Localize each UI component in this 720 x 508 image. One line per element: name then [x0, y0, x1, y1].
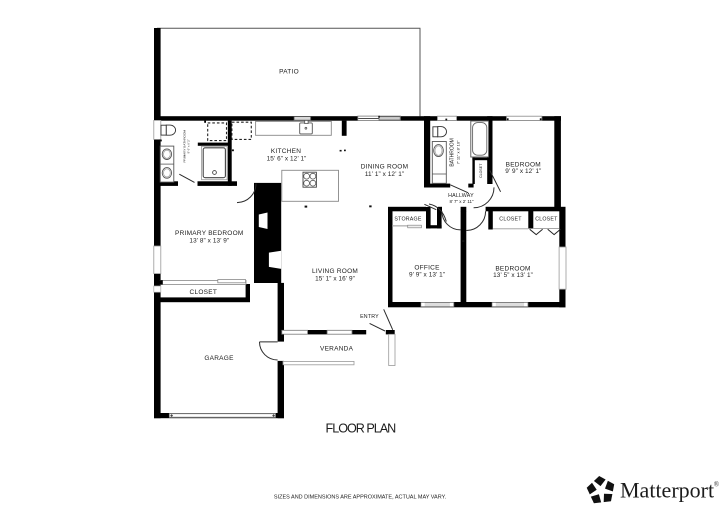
svg-text:®: ®	[714, 481, 720, 489]
svg-text:GARAGE: GARAGE	[204, 355, 234, 362]
svg-text:FLOOR PLAN: FLOOR PLAN	[326, 422, 397, 436]
svg-text:9’ 9” x 13’ 1”: 9’ 9” x 13’ 1”	[409, 272, 445, 279]
svg-text:HALLWAY: HALLWAY	[448, 193, 474, 199]
svg-text:9’ 9” x 12’ 1”: 9’ 9” x 12’ 1”	[505, 168, 541, 175]
svg-text:CLOSET: CLOSET	[499, 216, 522, 222]
svg-text:OFFICE: OFFICE	[414, 265, 440, 272]
svg-text:Matterport: Matterport	[620, 478, 714, 503]
svg-text:7’ 11” x 8’ 10”: 7’ 11” x 8’ 10”	[456, 140, 461, 164]
svg-text:PATIO: PATIO	[279, 69, 299, 76]
svg-text:CLOSET: CLOSET	[190, 289, 218, 296]
svg-text:SIZES AND DIMENSIONS ARE APPRO: SIZES AND DIMENSIONS ARE APPROXIMATE, AC…	[274, 494, 447, 500]
svg-text:8’ 7” x 2’ 11”: 8’ 7” x 2’ 11”	[449, 199, 474, 204]
svg-text:15’ 1” x 16’ 9”: 15’ 1” x 16’ 9”	[315, 275, 355, 282]
svg-text:STORAGE: STORAGE	[394, 217, 421, 223]
svg-text:DINING ROOM: DINING ROOM	[361, 163, 409, 170]
svg-text:PRIMARY BEDROOM: PRIMARY BEDROOM	[175, 230, 244, 237]
svg-text:13’ 8” x 13’ 9”: 13’ 8” x 13’ 9”	[189, 237, 229, 244]
svg-text:VERANDA: VERANDA	[320, 346, 354, 353]
svg-text:CLOSET: CLOSET	[535, 216, 558, 222]
svg-text:KITCHEN: KITCHEN	[271, 148, 301, 155]
svg-text:15’ 6” x 12’ 1”: 15’ 6” x 12’ 1”	[267, 155, 307, 162]
svg-text:CLOSET: CLOSET	[479, 163, 483, 178]
svg-text:13’ 5” x 13’ 1”: 13’ 5” x 13’ 1”	[493, 272, 533, 279]
svg-text:LIVING ROOM: LIVING ROOM	[312, 268, 358, 275]
svg-text:11’ 1” x 12’ 1”: 11’ 1” x 12’ 1”	[365, 171, 404, 178]
svg-text:ENTRY: ENTRY	[360, 314, 379, 320]
svg-text:9’ 6” x 6’ 2”: 9’ 6” x 6’ 2”	[187, 139, 191, 153]
